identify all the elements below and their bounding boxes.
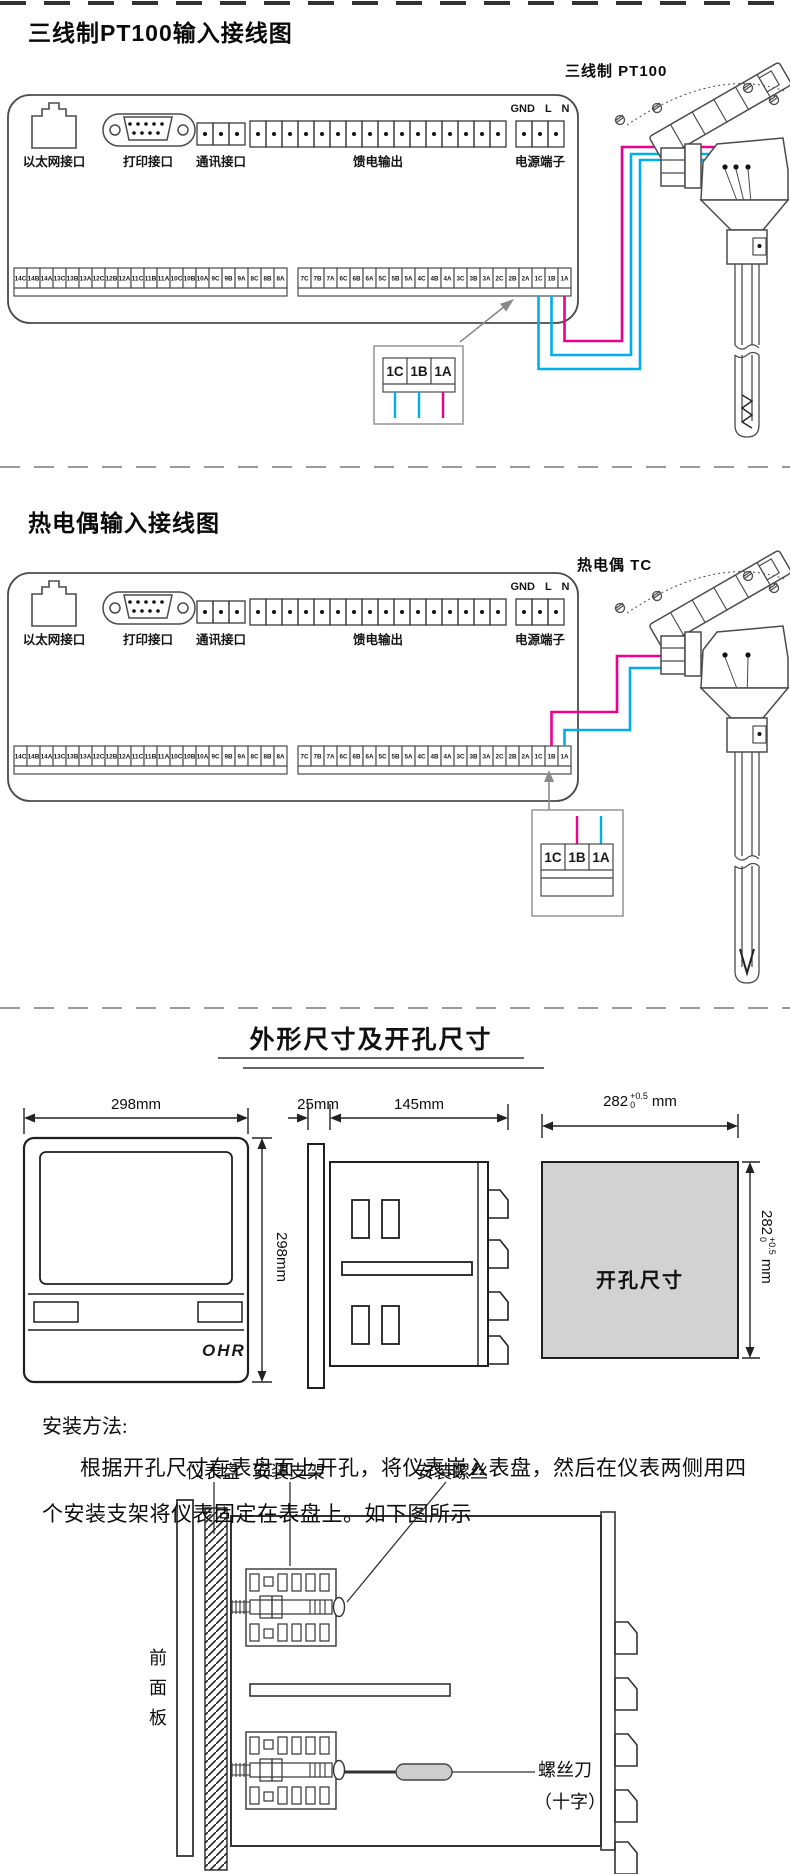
install-line1: 根据开孔尺寸在表盘面上开孔，将仪表嵌入表盘，然后在仪表两侧用四	[80, 1452, 747, 1482]
front-panel-bar	[177, 1500, 193, 1856]
side-mounting-clips	[488, 1190, 508, 1364]
terminal-cell-label: 1A	[434, 364, 452, 379]
probe-tip	[735, 425, 759, 437]
rear-clip	[615, 1734, 637, 1766]
section1-title: 三线制PT100输入接线图	[28, 14, 293, 48]
front-button-right	[198, 1302, 242, 1322]
terminal-cell-label: 13C	[54, 275, 66, 282]
side-bezel-dim: 25mm	[297, 1096, 339, 1113]
comm-label-1: 通讯接口	[196, 151, 246, 170]
bracket-tooth	[306, 1574, 315, 1591]
bracket-tooth	[278, 1737, 287, 1754]
bracket-tooth	[264, 1629, 273, 1638]
terminal-cell-label: 1C	[534, 275, 543, 282]
terminal-cell-label: 7A	[326, 275, 335, 282]
terminal-cell-label: 2C	[495, 275, 504, 282]
terminal-cell-label: 1B	[547, 275, 556, 282]
terminal-cell-label: 12C	[93, 275, 105, 282]
terminal-cell-label: 10A	[197, 275, 209, 282]
bracket-tooth	[292, 1574, 301, 1591]
tc-sensor-drawing	[615, 550, 790, 983]
ethernet-port-icon	[32, 103, 76, 148]
terminal-cell-label: 7C	[300, 275, 309, 282]
connector-dot	[538, 132, 542, 136]
detail-arrow-2	[544, 770, 554, 782]
collar-dot	[758, 732, 762, 736]
bracket-tooth	[292, 1737, 301, 1754]
connector-dot	[272, 132, 276, 136]
screen-area	[40, 1152, 232, 1284]
power-label-1: 电源端子	[515, 151, 565, 170]
terminal-cell-label: 11A	[158, 275, 170, 282]
terminal-cell-label: 8C	[250, 275, 259, 282]
terminal-cell-label: 11C	[132, 275, 144, 282]
terminal-cell-label: 3A	[482, 275, 491, 282]
manual-page: 14C14B14A13C13B13A12C12B12A11C11B11A10C1…	[0, 0, 790, 1874]
connector-dot	[336, 132, 340, 136]
bracket-tooth	[278, 1624, 287, 1641]
connector-dot	[219, 132, 223, 136]
terminal-cell-label: 5A	[404, 275, 413, 282]
cutout-label: 开孔尺寸	[596, 1264, 684, 1293]
side-clip	[488, 1292, 508, 1320]
connector-dot	[464, 132, 468, 136]
probe-break	[735, 864, 759, 869]
terminal-cell-label: 13B	[67, 275, 79, 282]
connector-dot	[480, 132, 484, 136]
connector-dot	[368, 132, 372, 136]
diagram-canvas: 14C14B14A13C13B13A12C12B12A11C11B11A10C1…	[0, 0, 790, 1874]
screwdriver-icon	[344, 1764, 535, 1780]
front-height-dim: 298mm	[273, 1232, 290, 1282]
printer-label-1: 打印接口	[123, 151, 173, 170]
terminal-cell-label: 8A	[276, 275, 285, 282]
rtd-element	[742, 395, 752, 428]
terminal-strip-right: 7C7B7A6C6B6A5C5B5A4C4B4A3C3B3A2C2B2A1C1B…	[298, 268, 571, 288]
screw-callout: 安装螺丝	[416, 1458, 488, 1484]
bracket-tooth	[306, 1787, 315, 1804]
bracket-tooth	[320, 1574, 329, 1591]
connector-dot	[288, 132, 292, 136]
connector-dot	[496, 132, 500, 136]
rear-clip	[615, 1678, 637, 1710]
collar-dot	[758, 244, 762, 248]
terminal-cell-label: 3B	[469, 275, 478, 282]
terminal-cell-label: 14C	[15, 275, 27, 282]
installation-diagram	[177, 1482, 637, 1874]
side-clip	[488, 1240, 508, 1268]
power-pins-1: GND L N	[510, 103, 569, 115]
bracket-tooth	[264, 1792, 273, 1801]
cutout-view-drawing	[542, 1114, 760, 1358]
terminal-cell-label: 14B	[28, 275, 40, 282]
bracket-tooth	[320, 1737, 329, 1754]
terminal-cell-label: 8B	[263, 275, 272, 282]
rear-clip	[615, 1842, 637, 1874]
front-width-dim: 298mm	[111, 1096, 161, 1113]
terminal-cell-label: 10C	[171, 275, 183, 282]
rear-clip	[615, 1790, 637, 1822]
shaft-nut	[272, 1759, 282, 1781]
side-depth-dim: 145mm	[394, 1096, 444, 1113]
front-button-left	[34, 1302, 78, 1322]
bracket-tooth	[278, 1787, 287, 1804]
brand-logo: OHR	[202, 1341, 246, 1361]
pt100-sensor-label: 三线制 PT100	[565, 60, 667, 81]
terminal-cell-label: 12A	[119, 275, 131, 282]
connector-dot	[432, 132, 436, 136]
connector-dot	[554, 132, 558, 136]
section3-title: 外形尺寸及开孔尺寸	[249, 1020, 492, 1056]
bracket-tooth	[292, 1787, 301, 1804]
front-panel-callout: 前面板	[144, 1648, 170, 1738]
nut-neck	[685, 144, 701, 188]
terminal-strip-left: 14C14B14A13C13B13A12C12B12A11C11B11A10C1…	[14, 268, 287, 288]
bracket-tooth	[306, 1624, 315, 1641]
side-slot	[342, 1262, 472, 1275]
connector-dot	[320, 132, 324, 136]
connector-dot	[235, 132, 239, 136]
hex-nut	[661, 148, 685, 186]
bracket-tooth	[250, 1574, 259, 1591]
cutout-width-dim: 282 +0.50 mm	[603, 1092, 677, 1111]
terminal-detail-box-2: 1C1B1A	[532, 770, 623, 916]
terminal-cell-label: 14A	[41, 275, 53, 282]
bracket-tooth	[278, 1574, 287, 1591]
cutout-width-unit: mm	[652, 1093, 677, 1110]
connector-dot	[448, 132, 452, 136]
terminal-cell-label: 4A	[443, 275, 452, 282]
connector-dot	[384, 132, 388, 136]
terminal-cell-label: 12B	[106, 275, 118, 282]
tc-sensor-label: 热电偶 TC	[577, 554, 652, 575]
terminal-cell-label: 6B	[352, 275, 361, 282]
head-body	[701, 138, 788, 200]
terminal-cell-label: 2B	[508, 275, 517, 282]
cutout-square	[542, 1162, 738, 1358]
connector-dot	[203, 132, 207, 136]
panel-callout: 仪表盘	[186, 1458, 240, 1484]
feed-label-2: 馈电输出	[353, 629, 403, 648]
probe-break	[735, 345, 759, 349]
bracket-tooth	[292, 1624, 301, 1641]
shaft-nut	[272, 1596, 282, 1618]
power-pins-2: GND L N	[510, 581, 569, 593]
terminal-cell-label: 10B	[184, 275, 196, 282]
terminal-cell-label: 5B	[391, 275, 400, 282]
connector-dot	[256, 132, 260, 136]
terminal-cell-label: 3C	[456, 275, 465, 282]
terminal-cell-label: 1C	[544, 850, 562, 865]
terminal-cell-label: 4C	[417, 275, 426, 282]
screwdriver-callout: 螺丝刀	[538, 1756, 592, 1782]
cutout-height-tol-bottom: 0	[757, 1237, 766, 1255]
head-terminal-dot	[745, 652, 750, 657]
terminal-cell-label: 1B	[410, 364, 428, 379]
install-line2: 个安装支架将仪表固定在表盘上。如下图所示	[42, 1498, 472, 1528]
rear-clip	[615, 1622, 637, 1654]
ethernet-label-1: 以太网接口	[23, 151, 86, 170]
bracket-tooth	[264, 1740, 273, 1749]
connector-dot	[522, 132, 526, 136]
cutout-height-tol-top: +0.5	[767, 1237, 776, 1255]
connector-dot	[416, 132, 420, 136]
feed-output-terminals	[250, 121, 506, 147]
cutout-height-unit: mm	[758, 1259, 775, 1284]
terminal-cell-label: 11B	[145, 275, 157, 282]
bracket-tooth	[250, 1737, 259, 1754]
install-heading: 安装方法:	[42, 1410, 128, 1439]
bracket-tooth	[320, 1624, 329, 1641]
recorder-rear-panel-2	[8, 573, 578, 801]
head-terminal-dot	[733, 164, 738, 169]
side-clip	[488, 1190, 508, 1218]
funnel	[701, 200, 788, 230]
terminal-cell-label: 1C	[386, 364, 404, 379]
side-view-drawing	[288, 1104, 508, 1388]
section2-title: 热电偶输入接线图	[28, 504, 220, 538]
head-terminal-dot	[745, 164, 750, 169]
detail-arrow-1	[500, 299, 514, 312]
terminal-cell-label: 9A	[237, 275, 246, 282]
terminal-cell-label: 6A	[365, 275, 374, 282]
cutout-width-tol-bottom: 0	[630, 1101, 648, 1110]
bracket-tooth	[306, 1737, 315, 1754]
shaft-nut	[260, 1759, 272, 1781]
terminal-cell-label: 4B	[430, 275, 439, 282]
instrument-panel-hatched	[205, 1508, 227, 1870]
bracket-callout: 安装支架	[253, 1458, 325, 1484]
terminal-cell-label: 6C	[339, 275, 348, 282]
cutout-height-dim: 282 +0.50 mm	[757, 1210, 776, 1284]
cutout-height-value: 282	[758, 1210, 775, 1235]
bracket-tooth	[264, 1577, 273, 1586]
ethernet-label-2: 以太网接口	[23, 629, 86, 648]
terminal-cell-label: 1A	[560, 275, 569, 282]
screwdriver-type-callout: （十字）	[534, 1788, 606, 1814]
terminal-cell-label: 5C	[378, 275, 387, 282]
terminal-cell-label: 7B	[313, 275, 322, 282]
bracket-tooth	[250, 1624, 259, 1641]
head-body	[701, 626, 788, 688]
head-terminal-dot	[722, 164, 727, 169]
comm-port-icon	[197, 123, 245, 145]
mounting-bracket-top	[230, 1569, 345, 1646]
head-terminal-dot	[722, 652, 727, 657]
mounting-bracket-bottom	[230, 1732, 345, 1809]
printer-label-2: 打印接口	[123, 629, 173, 648]
body-slot	[250, 1684, 450, 1696]
feed-label-1: 馈电输出	[353, 151, 403, 170]
hex-nut	[661, 636, 685, 674]
connector-dot	[400, 132, 404, 136]
rear-clips	[615, 1622, 637, 1874]
terminal-cell-label: 13A	[80, 275, 92, 282]
printer-port-icon	[103, 114, 195, 146]
power-label-2: 电源端子	[515, 629, 565, 648]
side-clip	[488, 1336, 508, 1364]
funnel	[701, 688, 788, 718]
terminal-cell-label: 9B	[224, 275, 233, 282]
terminal-cell-label: 9C	[211, 275, 220, 282]
power-terminals	[516, 121, 564, 147]
comm-label-2: 通讯接口	[196, 629, 246, 648]
terminal-detail-box-1: 1C1B1A	[374, 299, 514, 424]
terminal-cell-label: 1B	[568, 850, 586, 865]
nut-neck	[685, 632, 701, 676]
connector-dot	[352, 132, 356, 136]
bracket-tooth	[250, 1787, 259, 1804]
recorder-rear-panel: 14C14B14A13C13B13A12C12B12A11C11B11A10C1…	[8, 95, 578, 323]
shaft-nut	[260, 1596, 272, 1618]
probe-break	[735, 856, 759, 860]
terminal-cell-label: 2A	[521, 275, 530, 282]
screw-head	[334, 1598, 345, 1617]
probe-break	[735, 353, 759, 358]
connector-dot	[304, 132, 308, 136]
bracket-tooth	[320, 1787, 329, 1804]
cutout-width-value: 282	[603, 1093, 628, 1110]
screw-head	[334, 1761, 345, 1780]
terminal-cell-label: 1A	[592, 850, 610, 865]
